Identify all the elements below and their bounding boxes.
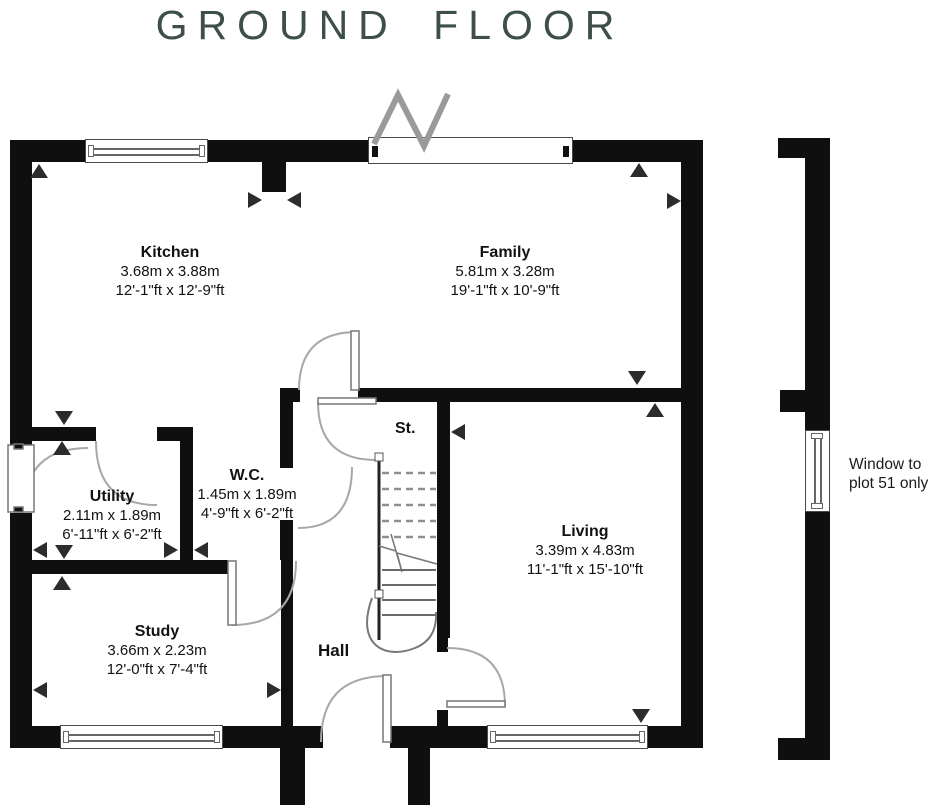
stair-rail-cap (375, 453, 383, 461)
door-swing-family-hall (299, 332, 357, 390)
exterior-wall-left-lower (10, 513, 32, 748)
plot51-wall-lower (805, 512, 830, 738)
room-size-metric: 1.45m x 1.89m (147, 485, 347, 504)
dimension-arrow (194, 542, 208, 558)
window-end-cap (199, 145, 205, 157)
exterior-wall-bottom-1 (10, 726, 60, 748)
plot51-wall-bottom-flange (778, 738, 830, 760)
window-glass-icon (493, 734, 642, 742)
exterior-wall-right (681, 140, 703, 748)
room-name: Study (57, 622, 257, 641)
window-end-cap (214, 731, 220, 743)
dimension-arrow (667, 193, 681, 209)
note-line: plot 51 only (849, 474, 928, 493)
dimension-arrow (287, 192, 301, 208)
stair-direction-curve (367, 598, 436, 652)
exterior-wall-bottom-3 (390, 726, 487, 748)
room-size-metric: 3.68m x 3.88m (70, 262, 270, 281)
door-leaf-study (228, 561, 236, 625)
room-label-kitchen: Kitchen 3.68m x 3.88m 12'-1"ft x 12'-9"f… (70, 243, 270, 300)
exterior-wall-top-1 (10, 140, 85, 162)
hall-top-wall-right (358, 388, 440, 402)
room-size-imperial: 19'-1"ft x 10'-9"ft (405, 281, 605, 300)
hall-top-wall-left (280, 388, 300, 402)
door-swing-hall-kitchen (318, 402, 376, 460)
stair-treads-lower (382, 570, 436, 615)
room-label-living: Living 3.39m x 4.83m 11'-1"ft x 15'-10"f… (485, 522, 685, 579)
stair-break-line (379, 534, 437, 572)
window-end-cap (811, 433, 823, 439)
exterior-wall-bottom-2 (223, 726, 323, 748)
porch-wall-left (280, 748, 305, 805)
room-label-family: Family 5.81m x 3.28m 19'-1"ft x 10'-9"ft (405, 243, 605, 300)
note-line: Window to (849, 455, 928, 474)
room-name: Family (405, 243, 605, 262)
kitchen-utility-wall-left (32, 427, 96, 441)
exterior-wall-top-2 (208, 140, 368, 162)
window-plot51-note: Window to plot 51 only (849, 455, 928, 493)
window-end-cap (811, 503, 823, 509)
dimension-arrow (646, 403, 664, 417)
dimension-arrow (55, 545, 73, 559)
bifold-door-opening (368, 137, 573, 164)
room-label-study: Study 3.66m x 2.23m 12'-0"ft x 7'-4"ft (57, 622, 257, 679)
dimension-arrow (632, 709, 650, 723)
dimension-arrow (33, 542, 47, 558)
plot51-wall-upper (805, 158, 830, 390)
window-end-cap (63, 731, 69, 743)
dimension-arrow (267, 682, 281, 698)
dimension-arrow (248, 192, 262, 208)
stair-rail-cap (375, 590, 383, 598)
living-window (487, 725, 648, 749)
dimension-arrow (164, 542, 178, 558)
exterior-wall-bottom-4 (648, 726, 703, 748)
dimension-arrow (630, 163, 648, 177)
dimension-arrow (53, 576, 71, 590)
door-swing-front-door (321, 676, 387, 742)
room-size-imperial: 4'-9"ft x 6'-2"ft (147, 504, 347, 523)
door-swing-living (447, 648, 505, 706)
study-window (60, 725, 223, 749)
door-leaf-living (447, 701, 505, 707)
dimension-arrow (628, 371, 646, 385)
stair-treads-upper (382, 473, 436, 537)
plot51-wall-mid (805, 412, 830, 430)
room-label-stairs: St. (395, 420, 415, 438)
room-label-hall: Hall (318, 641, 349, 661)
kitchen-window (85, 139, 208, 163)
dimension-arrow (30, 164, 48, 178)
window-end-cap (639, 731, 645, 743)
room-size-imperial: 6'-11"ft x 6'-2"ft (12, 525, 212, 544)
page-title: GROUND FLOOR (0, 2, 780, 49)
room-label-wc: W.C. 1.45m x 1.89m 4'-9"ft x 6'-2"ft (147, 466, 347, 523)
door-leaf-family-hall (351, 331, 359, 390)
wc-hall-wall-lower (280, 520, 293, 560)
opening-end-block (563, 146, 569, 157)
window-glass-icon (66, 734, 217, 742)
dimension-arrow (55, 411, 73, 425)
room-size-metric: 3.39m x 4.83m (485, 541, 685, 560)
study-top-wall (32, 560, 228, 574)
staircase (367, 453, 437, 652)
window-glass-icon (814, 436, 822, 506)
room-name: Living (485, 522, 685, 541)
dimension-arrow (53, 441, 71, 455)
plot51-wall-top-flange (778, 138, 830, 158)
room-size-metric: 3.66m x 2.23m (57, 641, 257, 660)
room-size-imperial: 12'-0"ft x 7'-4"ft (57, 660, 257, 679)
opening-end-block (372, 146, 378, 157)
floor-plan: GROUND FLOOR (0, 0, 936, 809)
room-name: W.C. (147, 466, 347, 485)
stair-living-wall (437, 390, 450, 638)
living-door-stub-top (437, 638, 448, 652)
plot51-window (805, 430, 830, 512)
family-living-wall (440, 388, 681, 402)
kitchen-family-wall-stub (262, 162, 286, 192)
room-size-imperial: 11'-1"ft x 15'-10"ft (485, 560, 685, 579)
plot51-wall-notch (780, 390, 830, 412)
study-hall-wall (281, 560, 293, 726)
window-end-cap (490, 731, 496, 743)
window-end-cap (88, 145, 94, 157)
exterior-wall-left-upper (10, 140, 32, 445)
room-size-metric: 5.81m x 3.28m (405, 262, 605, 281)
window-glass-icon (91, 148, 202, 156)
living-door-stub-bottom (437, 710, 448, 726)
room-name: Kitchen (70, 243, 270, 262)
room-size-imperial: 12'-1"ft x 12'-9"ft (70, 281, 270, 300)
porch-wall-right (408, 748, 430, 805)
dimension-arrow (451, 424, 465, 440)
dimension-arrow (33, 682, 47, 698)
